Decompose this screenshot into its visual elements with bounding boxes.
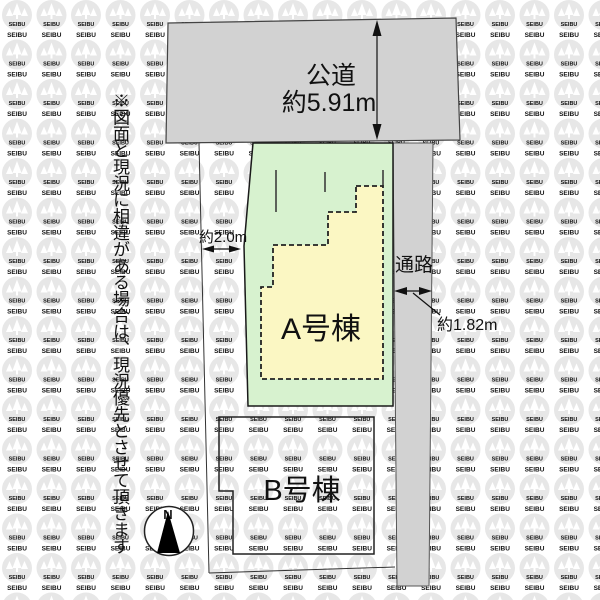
setback-width-label: 約2.0m xyxy=(199,229,247,246)
site-plan-page: SEIBUSEIBU 公道 約5.91m 通路 約1.82m xyxy=(0,0,600,600)
passage-width-label: 約1.82m xyxy=(437,316,497,334)
road-width-label: 約5.91m xyxy=(282,89,376,117)
road-name-label: 公道 xyxy=(306,62,356,90)
site-plan: 公道 約5.91m 通路 約1.82m A号棟 約2.0m xyxy=(0,0,600,600)
building-b-label: B号棟 xyxy=(263,474,340,507)
boundary-line-left xyxy=(199,143,209,573)
setback-dimension-arrow xyxy=(202,246,241,253)
compass: N xyxy=(145,507,194,556)
passage-strip xyxy=(393,143,433,586)
disclaimer-note: ※図面と現況に相違がある場合は、現況優先とさせて頂きます xyxy=(101,92,137,584)
boundary-line-bottom xyxy=(209,567,395,573)
building-a-label: A号棟 xyxy=(281,313,361,346)
passage-label: 通路 xyxy=(395,254,433,276)
